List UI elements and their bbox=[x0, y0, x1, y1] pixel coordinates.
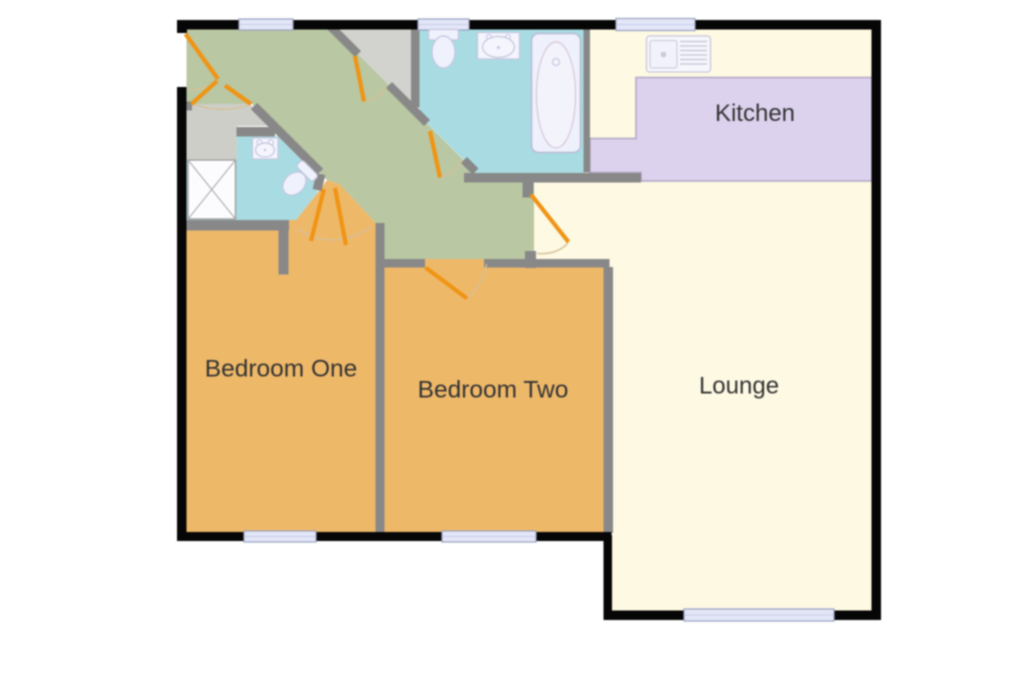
svg-text:Kitchen: Kitchen bbox=[715, 100, 795, 127]
svg-text:Bedroom Two: Bedroom Two bbox=[418, 377, 569, 404]
svg-text:Lounge: Lounge bbox=[699, 373, 779, 400]
svg-text:Bedroom One: Bedroom One bbox=[205, 356, 358, 383]
